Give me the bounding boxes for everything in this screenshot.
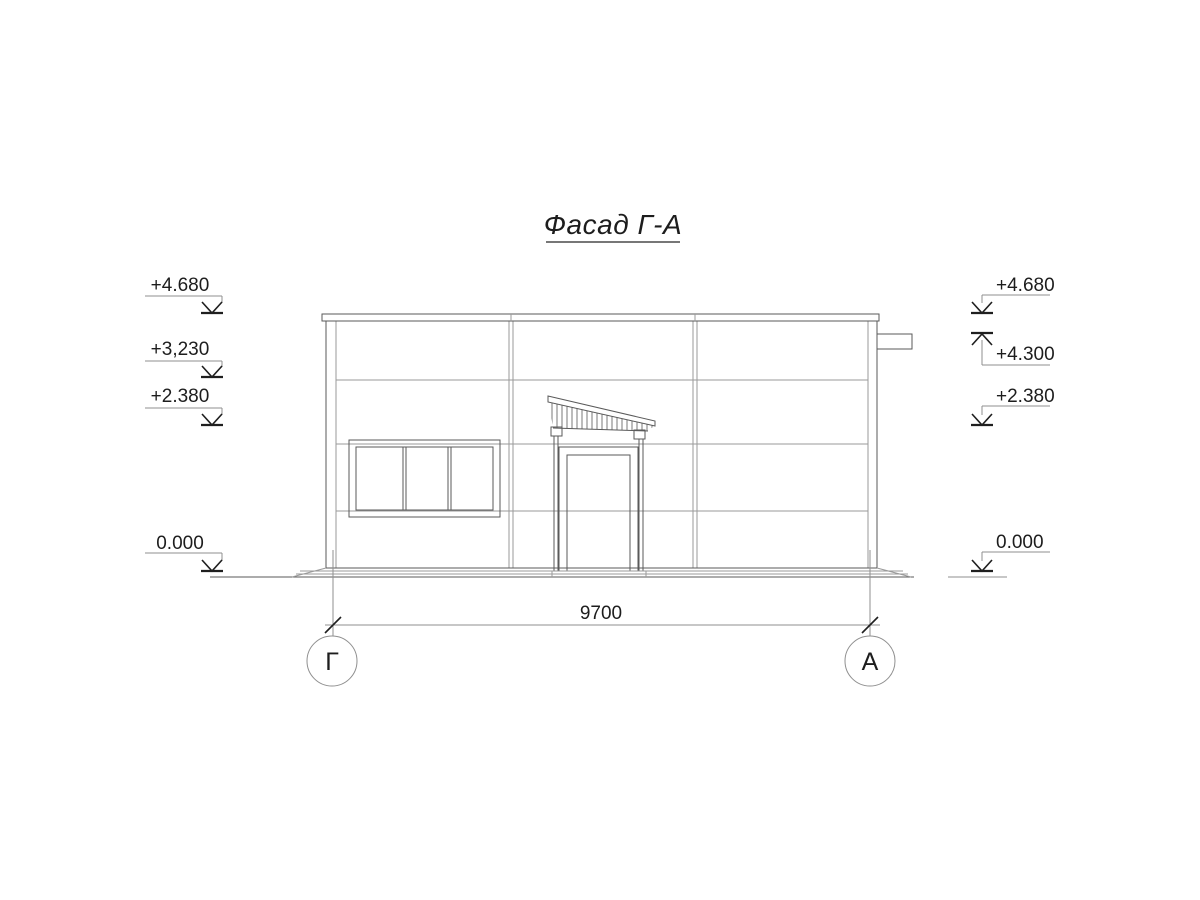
elevation-label: 0.000 xyxy=(156,533,204,554)
level-arrow-down-icon xyxy=(971,302,993,313)
window xyxy=(349,440,500,517)
title-block: Фасад Г-А xyxy=(544,209,682,242)
drain-pipe xyxy=(877,334,912,349)
facade-drawing: 9700 Г А +4.680 +3,230 +2.380 xyxy=(0,0,1200,900)
level-arrow-down-icon xyxy=(971,560,993,571)
entrance-door xyxy=(559,447,638,571)
door-frame xyxy=(559,447,638,571)
apron-slope xyxy=(877,568,911,577)
elevation-label: +4.680 xyxy=(151,275,210,296)
level-arrow-down-icon xyxy=(201,302,223,313)
window-outer-frame xyxy=(349,440,500,517)
elevation-mark: +2.380 xyxy=(145,386,223,425)
facade-wall xyxy=(322,314,879,568)
elevation-label: +4.680 xyxy=(996,275,1055,296)
elevation-label: +3,230 xyxy=(151,339,210,360)
level-arrow-down-icon xyxy=(201,414,223,425)
base-apron xyxy=(210,568,914,577)
apron-slope xyxy=(292,568,326,577)
elevation-mark: +4.680 xyxy=(971,275,1055,313)
axis-label-right: А xyxy=(862,648,879,676)
elevation-mark: +3,230 xyxy=(145,339,223,377)
dimension-label: 9700 xyxy=(580,603,622,624)
entrance-canopy xyxy=(548,396,655,571)
elevation-mark: +4.300 xyxy=(971,333,1055,365)
drawing-sheet: 9700 Г А +4.680 +3,230 +2.380 xyxy=(0,0,1200,900)
elevation-marks-left: +4.680 +3,230 +2.380 xyxy=(145,275,223,571)
level-arrow-down-icon xyxy=(201,560,223,571)
parapet-band xyxy=(322,314,879,321)
elevation-label: 0.000 xyxy=(996,532,1044,553)
door-leaf xyxy=(567,455,630,571)
elevation-mark: +4.680 xyxy=(145,275,223,313)
elevation-mark: +2.380 xyxy=(971,386,1055,425)
elevation-marks-right: +4.680 +4.300 +2.380 xyxy=(948,275,1055,577)
level-arrow-down-icon xyxy=(201,366,223,377)
elevation-label: +2.380 xyxy=(151,386,210,407)
axis-label-left: Г xyxy=(325,648,339,676)
elevation-label: +2.380 xyxy=(996,386,1055,407)
elevation-label: +4.300 xyxy=(996,344,1055,365)
elevation-mark: 0.000 xyxy=(948,532,1050,577)
canopy-hatch xyxy=(549,402,654,431)
window-inner-frame xyxy=(356,447,493,510)
elevation-mark: 0.000 xyxy=(145,533,223,571)
level-arrow-down-icon xyxy=(971,414,993,425)
drawing-title: Фасад Г-А xyxy=(544,209,682,240)
dimension-block: 9700 Г А xyxy=(307,550,895,686)
